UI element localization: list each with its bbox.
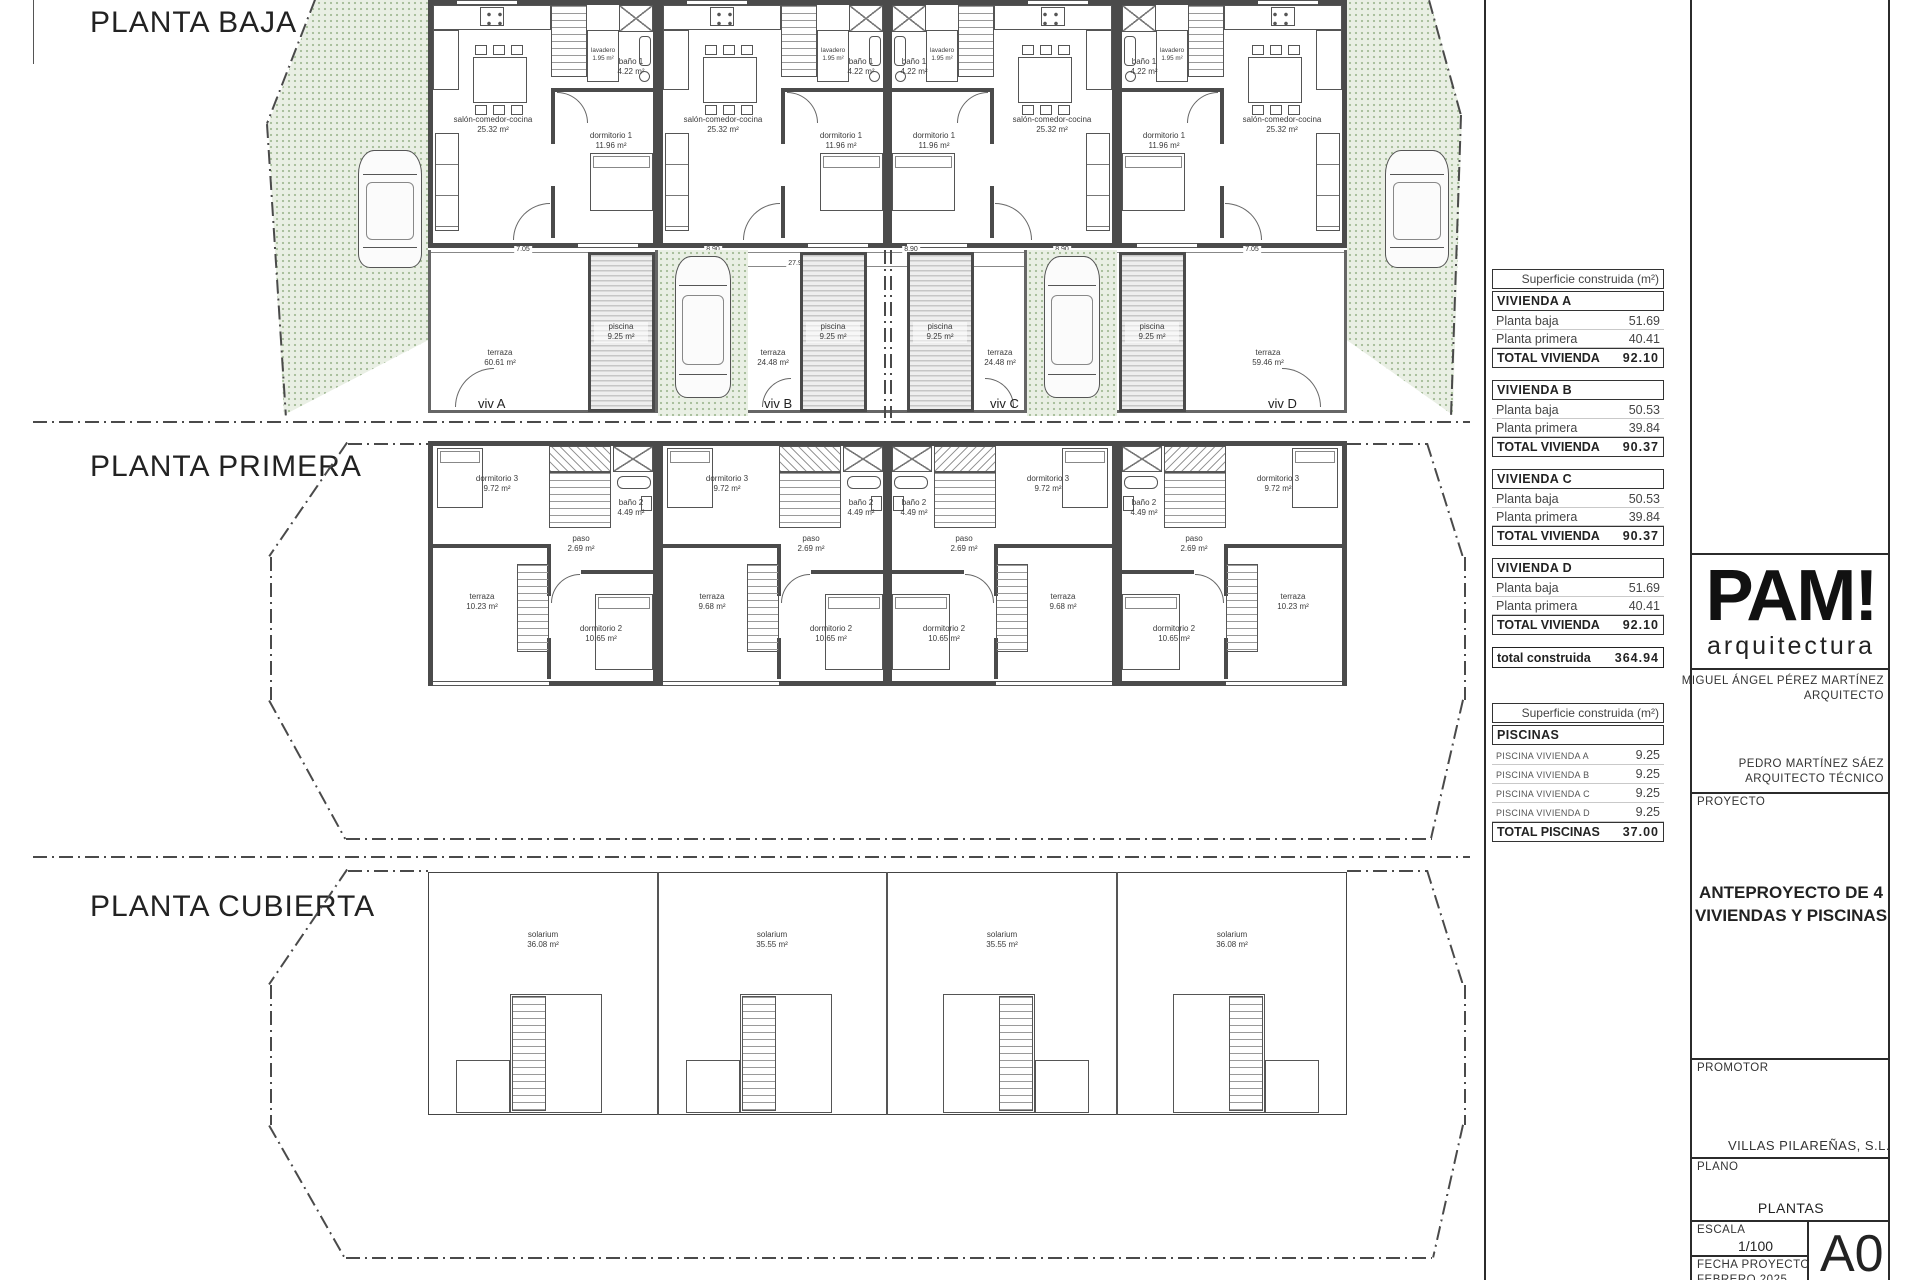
terrace-stairs-hatch (996, 564, 1028, 652)
roof-landing (686, 1060, 740, 1113)
terrace-parapet (663, 681, 779, 686)
architect-name: MIGUEL ÁNGEL PÉREZ MARTÍNEZ (1682, 675, 1884, 687)
roof-landing (456, 1060, 510, 1113)
door-arc (965, 574, 994, 603)
room-label: baño 1 4.22 m² (834, 57, 888, 78)
cooktop-icon (480, 7, 504, 26)
terrace-wall (1344, 250, 1347, 413)
wall-segment (892, 88, 994, 92)
lot-boundary-segment (1464, 985, 1466, 1125)
sofa (665, 133, 689, 231)
vivienda-c-area-block: VIVIENDA C Planta baja50.53 Planta prime… (1492, 469, 1664, 546)
table-row: Planta baja50.53 (1492, 401, 1664, 419)
chair (511, 105, 523, 115)
wall-segment (1122, 570, 1194, 574)
room-label: baño 2 4.49 m² (1117, 498, 1171, 519)
house-unit-ground: lavadero 1.95 m² baño 1 4.22 m² salón-co… (1117, 0, 1347, 248)
stair-void-icon (619, 5, 653, 32)
wall-segment (892, 570, 964, 574)
solarium-label: solarium36.08 m² (1177, 930, 1287, 951)
room-label: dormitorio 2 10.65 m² (1119, 624, 1229, 645)
vivienda-a-entry-label: viv A (478, 396, 505, 411)
table-row: Planta primera40.41 (1492, 330, 1664, 348)
promotor-value: VILLAS PILAREÑAS, S.L. (1728, 1138, 1890, 1153)
stairs-hatch (1229, 996, 1263, 1111)
lot-boundary-segment (268, 869, 348, 985)
room-label: dormitorio 2 10.65 m² (776, 624, 886, 645)
lot-boundary-segment (1347, 443, 1428, 445)
chair (475, 105, 487, 115)
window (578, 243, 638, 248)
block-title: VIVIENDA A (1492, 291, 1664, 311)
wall-segment (1122, 88, 1224, 92)
stairs-hatch (551, 5, 587, 77)
pool-label: piscina9.25 m² (594, 322, 648, 343)
solarium-label: solarium35.55 m² (717, 930, 827, 951)
car-icon (358, 150, 422, 268)
vivienda-c-ground-plan: lavadero 1.95 m² baño 1 4.22 m² salón-co… (887, 0, 1117, 248)
stairs-hatch (999, 996, 1033, 1111)
pam-logo: PAM! (1692, 560, 1890, 632)
bathtub-icon (1124, 476, 1158, 489)
solarium-label: solarium36.08 m² (488, 930, 598, 951)
pools-table-header: Superficie construida (m²) (1492, 703, 1664, 723)
titleblock-frame-line (1690, 1255, 1807, 1257)
door-arc (557, 92, 588, 123)
wall-segment (663, 544, 781, 548)
bathtub-icon (894, 476, 928, 489)
vivienda-c-first-plan: dormitorio 3 9.72 m² baño 2 4.49 m² paso… (887, 441, 1117, 686)
terrace-stairs-hatch (1226, 564, 1258, 652)
roof-void-hatch (549, 446, 611, 472)
dimension-text: 7.05 (514, 246, 532, 253)
stair-void-icon (1122, 5, 1156, 32)
chair (723, 45, 735, 55)
band-separator-line (33, 421, 1470, 423)
window (457, 0, 517, 5)
band-separator-line (33, 856, 1470, 858)
entrance-door-arc (1225, 203, 1262, 240)
pools-total-row: TOTAL PISCINAS37.00 (1492, 822, 1664, 842)
room-label: dormitorio 3 9.72 m² (700, 474, 754, 495)
vivienda-d-entry-label: viv D (1268, 396, 1297, 411)
chair (741, 45, 753, 55)
lot-boundary-segment (348, 870, 428, 872)
door-arc (787, 92, 818, 123)
chair (1252, 45, 1264, 55)
roof-party-wall (1116, 872, 1118, 1115)
stair-void-icon (892, 446, 932, 472)
roof-landing (1265, 1060, 1319, 1113)
wall-segment (990, 92, 994, 144)
technical-architect-role: ARQUITECTO TÉCNICO (1745, 773, 1884, 785)
room-label: dormitorio 3 9.72 m² (1021, 474, 1075, 495)
wall-segment (994, 544, 1112, 548)
room-label: salón-comedor-cocina 25.32 m² (438, 115, 548, 136)
lot-boundary-segment (270, 985, 272, 1125)
pool-label: piscina9.25 m² (913, 322, 967, 343)
lot-boundary-segment (348, 443, 428, 445)
room-label: paso 2.69 m² (784, 534, 838, 555)
terrace-label: terraza10.23 m² (1266, 592, 1320, 613)
stairs-hatch (1164, 472, 1226, 528)
promotor-label: PROMOTOR (1697, 1062, 1769, 1074)
lot-edge-line (33, 0, 34, 64)
roof-void-hatch (1164, 446, 1226, 472)
stairs-hatch (742, 996, 776, 1111)
sheet-size: A0 (1820, 1224, 1884, 1280)
table-row: Planta baja51.69 (1492, 579, 1664, 597)
roof-void-hatch (779, 446, 841, 472)
wall-segment (1220, 92, 1224, 144)
block-total-row: TOTAL VIVIENDA90.37 (1492, 437, 1664, 457)
stairs-hatch (781, 5, 817, 77)
wall-segment (551, 88, 653, 92)
vivienda-b-first-plan: dormitorio 3 9.72 m² baño 2 4.49 m² paso… (658, 441, 888, 686)
wall-segment (1220, 186, 1224, 238)
pools-table: Superficie construida (m²) PISCINAS PISC… (1492, 703, 1664, 842)
titleblock-frame-line (1690, 792, 1890, 794)
vivienda-d-first-plan: dormitorio 3 9.72 m² baño 2 4.49 m² paso… (1117, 441, 1347, 686)
lot-boundary-segment (346, 1257, 1432, 1259)
room-label: baño 1 4.22 m² (1117, 57, 1171, 78)
bed (820, 153, 883, 211)
planta-cubierta-title: PLANTA CUBIERTA (90, 890, 375, 924)
cooktop-icon (1271, 7, 1295, 26)
chair (493, 45, 505, 55)
dining-table (1248, 57, 1302, 103)
dimension-line (428, 252, 1347, 253)
lot-boundary-segment (1464, 557, 1466, 700)
chair (723, 105, 735, 115)
fecha-value: FEBRERO 2025 (1697, 1274, 1787, 1280)
stair-void-icon (1122, 446, 1162, 472)
vivienda-a-ground-plan: lavadero 1.95 m² baño 1 4.22 m² salón-co… (428, 0, 658, 248)
dining-table (473, 57, 527, 103)
wall-segment (551, 186, 555, 238)
chair (705, 45, 717, 55)
cooktop-icon (710, 7, 734, 26)
room-label: salón-comedor-cocina 25.32 m² (668, 115, 778, 136)
room-label: baño 2 4.49 m² (604, 498, 658, 519)
vivienda-a-first-plan: dormitorio 3 9.72 m² baño 2 4.49 m² paso… (428, 441, 658, 686)
table-row: PISCINA VIVIENDA A9.25 (1492, 746, 1664, 765)
room-label: dormitorio 2 10.65 m² (889, 624, 999, 645)
terrace-parapet (996, 681, 1112, 686)
room-label: dormitorio 2 10.65 m² (546, 624, 656, 645)
entrance-door-arc (513, 203, 550, 240)
fridge (1316, 30, 1342, 90)
wall-segment (433, 544, 551, 548)
lot-boundary-segment (346, 838, 1432, 840)
chair (705, 105, 717, 115)
escala-label: ESCALA (1697, 1224, 1745, 1236)
lot-boundary-segment (270, 557, 272, 700)
wall-segment (781, 88, 883, 92)
sofa (1316, 133, 1340, 231)
bed (1122, 153, 1185, 211)
fecha-label: FECHA PROYECTO (1697, 1259, 1810, 1271)
house-unit-first: dormitorio 3 9.72 m² baño 2 4.49 m² paso… (428, 441, 658, 686)
terrace-label: terraza10.23 m² (455, 592, 509, 613)
room-label: dormitorio 3 9.72 m² (1251, 474, 1305, 495)
planta-baja-title: PLANTA BAJA (90, 6, 297, 40)
wall-segment (990, 186, 994, 238)
block-total-row: TOTAL VIVIENDA92.10 (1492, 615, 1664, 635)
stairs-hatch (512, 996, 546, 1111)
lot-boundary-segment (1430, 700, 1464, 839)
dining-table (1018, 57, 1072, 103)
door-arc (1195, 574, 1224, 603)
dimension-text: 7.05 (1243, 246, 1261, 253)
stairs-hatch (958, 5, 994, 77)
escala-value: 1/100 (1738, 1238, 1773, 1254)
car-icon (675, 256, 731, 398)
table-row: PISCINA VIVIENDA B9.25 (1492, 765, 1664, 784)
room-label: paso 2.69 m² (937, 534, 991, 555)
wall-segment (781, 92, 785, 144)
dining-table (703, 57, 757, 103)
door-arc (781, 574, 810, 603)
room-label: paso 2.69 m² (1167, 534, 1221, 555)
wall-segment (1224, 544, 1342, 548)
wall-segment (581, 570, 653, 574)
technical-architect-name: PEDRO MARTÍNEZ SÁEZ (1739, 758, 1884, 770)
fridge (433, 30, 459, 90)
plano-value: PLANTAS (1692, 1200, 1890, 1216)
block-title: VIVIENDA D (1492, 558, 1664, 578)
fridge (1086, 30, 1112, 90)
titleblock-frame-line (1690, 1220, 1890, 1222)
block-title: VIVIENDA B (1492, 380, 1664, 400)
areas-table: Superficie construida (m²) VIVIENDA A Pl… (1492, 269, 1664, 668)
pam-logo-subtitle: arquitectura (1692, 632, 1890, 661)
areas-table-header: Superficie construida (m²) (1492, 269, 1664, 289)
terrace-stairs-hatch (747, 564, 779, 652)
window (808, 243, 868, 248)
sofa (435, 133, 459, 231)
car-icon (1385, 150, 1449, 268)
stairs-hatch (1188, 5, 1224, 77)
chair (1022, 45, 1034, 55)
wall-segment (551, 92, 555, 144)
room-label: salón-comedor-cocina 25.32 m² (1227, 115, 1337, 136)
lot-boundary-segment (268, 700, 346, 839)
terrace-parapet (433, 681, 549, 686)
house-unit-first: dormitorio 3 9.72 m² baño 2 4.49 m² paso… (658, 441, 888, 686)
terrace-parapet (1226, 681, 1342, 686)
window (1258, 0, 1318, 5)
table-row: Planta baja50.53 (1492, 490, 1664, 508)
pool-label: piscina9.25 m² (1125, 322, 1179, 343)
house-unit-ground: lavadero 1.95 m² baño 1 4.22 m² salón-co… (428, 0, 658, 248)
vivienda-b-ground-plan: lavadero 1.95 m² baño 1 4.22 m² salón-co… (658, 0, 888, 248)
lot-boundary-segment (1347, 870, 1428, 872)
terrace-wall (428, 250, 431, 413)
stairs-hatch (549, 472, 611, 528)
chair (1288, 45, 1300, 55)
vivienda-d-area-block: VIVIENDA D Planta baja51.69 Planta prime… (1492, 558, 1664, 635)
project-title-line1: ANTEPROYECTO DE 4 (1694, 882, 1888, 905)
stair-void-icon (843, 446, 883, 472)
block-title: VIVIENDA C (1492, 469, 1664, 489)
pools-table-title: PISCINAS (1492, 725, 1664, 745)
room-label: dormitorio 1 11.96 m² (556, 131, 666, 152)
chair (511, 45, 523, 55)
titleblock-frame-line (1690, 1157, 1890, 1159)
door-arc (1187, 92, 1218, 123)
chair (1040, 105, 1052, 115)
roof-void-hatch (934, 446, 996, 472)
room-label: dormitorio 1 11.96 m² (879, 131, 989, 152)
titleblock-frame-line (1690, 1058, 1890, 1060)
chair (1058, 45, 1070, 55)
chair (1270, 45, 1282, 55)
window (687, 0, 747, 5)
bed (892, 153, 955, 211)
terrace-label: terraza60.61 m² (445, 348, 555, 369)
room-label: dormitorio 1 11.96 m² (1109, 131, 1219, 152)
house-unit-ground: lavadero 1.95 m² baño 1 4.22 m² salón-co… (887, 0, 1117, 248)
vivienda-b-area-block: VIVIENDA B Planta baja50.53 Planta prime… (1492, 380, 1664, 457)
bed (590, 153, 653, 211)
door-arc (957, 92, 988, 123)
table-row: Planta primera40.41 (1492, 597, 1664, 615)
vivienda-b-entry-label: viv B (764, 396, 792, 411)
room-label: dormitorio 3 9.72 m² (470, 474, 524, 495)
architectural-plan-sheet: PLANTA BAJA lavadero 1.95 m² baño 1 4.22… (0, 0, 1920, 1280)
pool-label: piscina9.25 m² (806, 322, 860, 343)
chair (741, 105, 753, 115)
terrace-stairs-hatch (517, 564, 549, 652)
room-label: paso 2.69 m² (554, 534, 608, 555)
plot-centerline (890, 250, 892, 418)
vivienda-c-entry-label: viv C (990, 396, 1019, 411)
entrance-door-arc (995, 203, 1032, 240)
stair-void-icon (613, 446, 653, 472)
roof-landing (1035, 1060, 1089, 1113)
house-unit-first: dormitorio 3 9.72 m² baño 2 4.49 m² paso… (1117, 441, 1347, 686)
chair (1022, 105, 1034, 115)
bathtub-icon (847, 476, 881, 489)
stair-void-icon (849, 5, 883, 32)
window (1137, 243, 1197, 248)
terrace-label: terraza9.68 m² (1036, 592, 1090, 613)
stairs-hatch (779, 472, 841, 528)
lot-boundary-segment (268, 1125, 346, 1259)
plano-label: PLANO (1697, 1161, 1739, 1173)
fridge (663, 30, 689, 90)
table-row: PISCINA VIVIENDA C9.25 (1492, 784, 1664, 803)
terrace-label: terraza24.48 m² (973, 348, 1027, 369)
chair (475, 45, 487, 55)
room-label: salón-comedor-cocina 25.32 m² (997, 115, 1107, 136)
lot-boundary-segment (1426, 443, 1464, 558)
titleblock-frame-line (1807, 1220, 1809, 1280)
vivienda-d-ground-plan: lavadero 1.95 m² baño 1 4.22 m² salón-co… (1117, 0, 1347, 248)
room-label: baño 1 4.22 m² (604, 57, 658, 78)
proyecto-label: PROYECTO (1697, 796, 1765, 808)
chair (493, 105, 505, 115)
wall-segment (781, 186, 785, 238)
house-unit-ground: lavadero 1.95 m² baño 1 4.22 m² salón-co… (658, 0, 888, 248)
roof-party-wall (886, 872, 888, 1115)
sofa (1086, 133, 1110, 231)
window (1028, 0, 1088, 5)
room-label: baño 2 4.49 m² (834, 498, 888, 519)
chair (1058, 105, 1070, 115)
stairs-hatch (934, 472, 996, 528)
room-label: baño 2 4.49 m² (887, 498, 941, 519)
table-row: PISCINA VIVIENDA D9.25 (1492, 803, 1664, 822)
chair (1288, 105, 1300, 115)
sheet-divider-line (1484, 0, 1486, 1280)
lot-boundary-segment (1426, 870, 1464, 986)
roof-party-wall (657, 872, 659, 1115)
stair-void-icon (892, 5, 926, 32)
house-unit-first: dormitorio 3 9.72 m² baño 2 4.49 m² paso… (887, 441, 1117, 686)
solarium-label: solarium35.55 m² (947, 930, 1057, 951)
chair (1270, 105, 1282, 115)
titleblock-frame-line (1690, 668, 1890, 670)
vivienda-a-area-block: VIVIENDA A Planta baja51.69 Planta prime… (1492, 291, 1664, 368)
table-row: Planta baja51.69 (1492, 312, 1664, 330)
terrace-label: terraza24.48 m² (746, 348, 800, 369)
room-label: baño 1 4.22 m² (887, 57, 941, 78)
terrace-label: terraza9.68 m² (685, 592, 739, 613)
table-row: Planta primera39.84 (1492, 508, 1664, 526)
project-title-line2: VIVIENDAS Y PISCINAS (1694, 905, 1888, 928)
door-arc (551, 574, 580, 603)
titleblock-frame-line (1690, 553, 1890, 555)
lot-boundary-segment (1432, 1125, 1464, 1258)
block-total-row: TOTAL VIVIENDA90.37 (1492, 526, 1664, 546)
chair (1040, 45, 1052, 55)
entrance-door-arc (743, 203, 780, 240)
grand-total-row: total construida364.94 (1492, 647, 1664, 668)
bathtub-icon (617, 476, 651, 489)
table-row: Planta primera39.84 (1492, 419, 1664, 437)
terrace-label: terraza59.46 m² (1213, 348, 1323, 369)
plot-centerline (884, 250, 886, 418)
wall-segment (811, 570, 883, 574)
car-icon (1044, 256, 1100, 398)
architect-role: ARQUITECTO (1804, 690, 1884, 702)
chair (1252, 105, 1264, 115)
block-total-row: TOTAL VIVIENDA92.10 (1492, 348, 1664, 368)
cooktop-icon (1041, 7, 1065, 26)
